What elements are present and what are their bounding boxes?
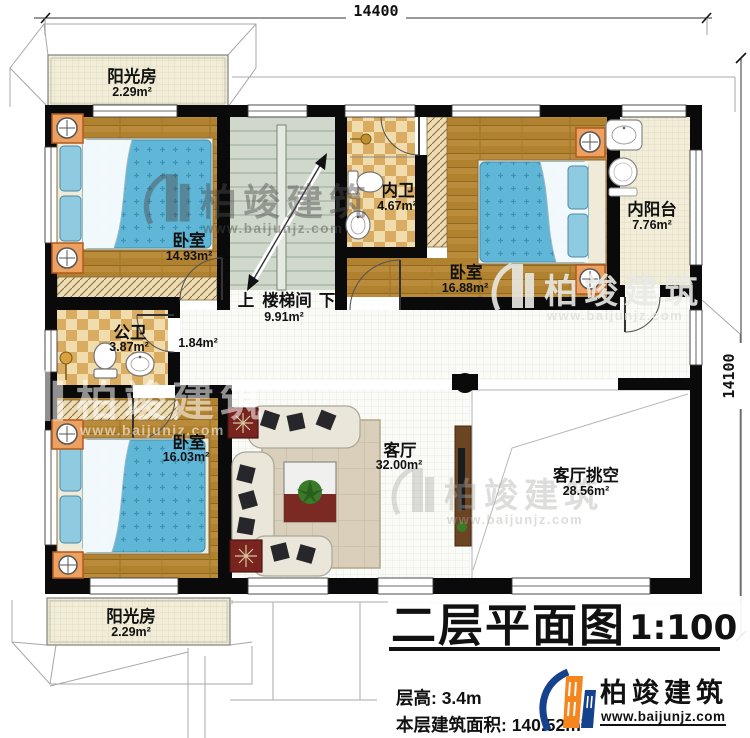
- window: [622, 105, 686, 117]
- water-heater-icon: [609, 158, 637, 196]
- side-table: [230, 540, 262, 572]
- window: [248, 105, 307, 117]
- nightstand: [53, 552, 83, 578]
- room-sunroom-bottom-area: 2.29m²: [111, 625, 151, 639]
- room-inner-balcony-label: 内阳台: [627, 199, 677, 219]
- room-bedroom-bl-label: 卧室: [173, 432, 206, 452]
- room-void-area: 28.56m²: [563, 484, 610, 498]
- room-bedroom-tr-area: 16.88m²: [442, 281, 489, 295]
- wardrobe-bedroom-tl: [57, 277, 217, 300]
- dimension-right-value: 14100: [720, 353, 738, 398]
- plan-scale: 1:100: [629, 608, 737, 648]
- sink-icon: [126, 352, 154, 376]
- washbasin-icon: [606, 120, 642, 150]
- room-stairwell-label: 楼梯间: [262, 290, 312, 310]
- wardrobe-bedroom-tr: [427, 117, 447, 247]
- watermark-text: 柏竣建筑: [544, 272, 704, 311]
- floor-height-text: 层高: 3.4m: [396, 688, 482, 708]
- living-room-set: [228, 406, 380, 576]
- window: [45, 330, 57, 372]
- hallway-area: 1.84m²: [178, 336, 218, 350]
- window: [90, 578, 178, 594]
- room-bedroom-tr-label: 卧室: [450, 262, 483, 282]
- floor-area-text: 本层建筑面积: 140.52m²: [396, 715, 587, 735]
- room-bedroom-bl-area: 16.03m²: [163, 450, 210, 464]
- structural-column: [455, 373, 475, 393]
- room-living-area: 32.00m²: [376, 458, 423, 472]
- bed-tr: [478, 160, 606, 264]
- watermark-url: www.baijunjz.com: [202, 221, 344, 236]
- faucet-icon: [361, 134, 371, 144]
- watermark-url: www.baijunjz.com: [446, 512, 583, 527]
- armchair: [252, 536, 332, 576]
- stair-up-label: 上: [238, 291, 255, 310]
- room-inner-bath-label: 内卫: [382, 180, 415, 200]
- room-sunroom-bottom-label: 阳光房: [106, 606, 156, 626]
- floor-plan-canvas: 柏竣建筑 www.baijunjz.com 柏竣建筑 www.baijunjz.…: [0, 0, 750, 738]
- window: [512, 578, 650, 594]
- nightstand: [52, 114, 83, 143]
- watermark-text: 柏竣建筑: [200, 181, 372, 223]
- coffee-table: [284, 462, 336, 522]
- room-living-label: 客厅: [383, 440, 418, 460]
- room-void-label: 客厅挑空: [552, 465, 619, 485]
- brand-block: 柏竣建筑 www.baijunjz.com: [543, 672, 728, 730]
- room-inner-bath-area: 4.67m²: [377, 199, 417, 213]
- nightstand: [576, 128, 605, 157]
- room-bedroom-tl-area: 14.93m²: [166, 249, 213, 263]
- window: [248, 578, 328, 594]
- room-sunroom-top-label: 阳光房: [107, 66, 157, 86]
- window: [345, 105, 415, 117]
- room-stairwell-area: 9.91m²: [264, 310, 304, 324]
- title-underline: [389, 647, 720, 651]
- dimension-top-value: 14400: [353, 2, 398, 20]
- window: [690, 150, 702, 265]
- window: [93, 105, 177, 117]
- room-public-bath-area: 3.87m²: [109, 340, 149, 354]
- window: [378, 578, 433, 594]
- brand-url: www.baijunjz.com: [600, 709, 726, 724]
- plan-title: 二层平面图: [391, 600, 626, 651]
- room-sunroom-top-area: 2.29m²: [112, 85, 152, 99]
- room-inner-balcony-area: 7.76m²: [632, 218, 672, 232]
- window: [45, 147, 57, 243]
- window: [452, 105, 540, 117]
- nightstand: [52, 243, 83, 273]
- brand-name: 柏竣建筑: [600, 677, 728, 708]
- watermark-text: 柏竣建筑: [76, 378, 268, 425]
- window: [690, 310, 702, 365]
- room-bedroom-tl-label: 卧室: [173, 230, 206, 250]
- watermark-url: www.baijunjz.com: [546, 308, 683, 323]
- stair-down-label: 下: [319, 292, 336, 310]
